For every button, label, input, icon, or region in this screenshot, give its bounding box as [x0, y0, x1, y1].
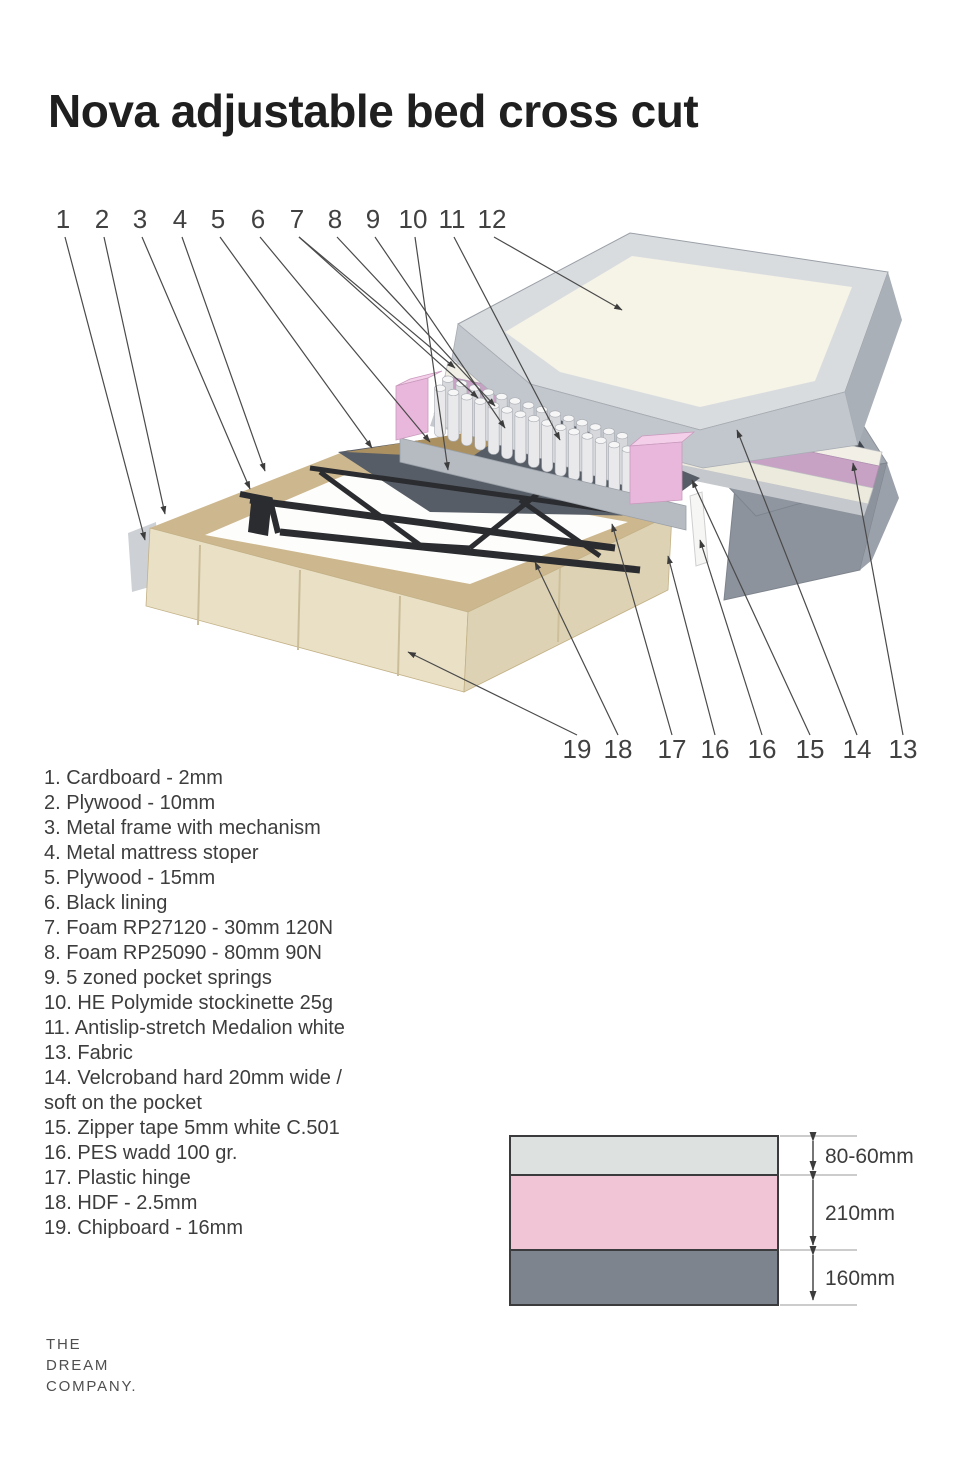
callout-leader-line — [299, 237, 455, 368]
spring-coil-cap — [523, 402, 534, 408]
spring-coil-cap — [475, 398, 486, 404]
spring-coil-cap — [595, 437, 606, 443]
legend-item: 16. PES wadd 100 gr. — [44, 1141, 456, 1166]
callout-number: 1 — [56, 204, 70, 234]
legend-item: 11. Antislip-stretch Medalion white — [44, 1016, 456, 1041]
callout-number: 15 — [796, 734, 825, 764]
parts-legend: 1. Cardboard - 2mm2. Plywood - 10mm3. Me… — [44, 766, 456, 1241]
spring-coil-cap — [496, 393, 507, 399]
callout-number: 9 — [366, 204, 380, 234]
callout-leader-line — [65, 237, 145, 540]
legend-item: 1. Cardboard - 2mm — [44, 766, 456, 791]
spring-coil-cap — [448, 389, 459, 395]
legend-item: 4. Metal mattress stoper — [44, 841, 456, 866]
callout-number: 19 — [563, 734, 592, 764]
legend-item: 2. Plywood - 10mm — [44, 791, 456, 816]
spring-coil — [502, 407, 513, 459]
spring-coil-cap — [569, 429, 580, 435]
spring-coil-cap — [510, 398, 521, 404]
spring-coil-cap — [563, 415, 574, 421]
legend-item: 9. 5 zoned pocket springs — [44, 966, 456, 991]
bed-cross-cut-illustration: 1234567891011121918171616151413 — [0, 190, 970, 770]
spring-coil-cap — [603, 428, 614, 434]
callout-number: 17 — [658, 734, 687, 764]
legend-item: 6. Black lining — [44, 891, 456, 916]
spring-coil — [475, 398, 486, 450]
callout-leader-line — [668, 556, 715, 735]
callout-leader-line — [415, 237, 448, 470]
callout-leader-line — [299, 237, 478, 398]
legend-item: 17. Plastic hinge — [44, 1166, 456, 1191]
callout-leader-line — [220, 237, 372, 448]
spring-coil-cap — [502, 407, 513, 413]
spring-coil-cap — [528, 415, 539, 421]
page: Nova adjustable bed cross cut — [0, 0, 970, 1462]
callout-number: 16 — [748, 734, 777, 764]
dimension-label-bottom: 160mm — [825, 1267, 895, 1290]
spring-coil — [542, 420, 553, 472]
callout-number: 12 — [478, 204, 507, 234]
legend-item: 8. Foam RP25090 - 80mm 90N — [44, 941, 456, 966]
spring-coil — [448, 389, 459, 441]
callout-leader-line — [182, 237, 265, 471]
callout-number: 3 — [133, 204, 147, 234]
layer-middle — [510, 1175, 778, 1250]
dimension-label-middle: 210mm — [825, 1202, 895, 1225]
legend-item: 13. Fabric — [44, 1041, 456, 1066]
spring-coil — [595, 437, 606, 489]
spring-coil-cap — [582, 433, 593, 439]
spring-coil — [569, 429, 580, 481]
callout-number: 4 — [173, 204, 187, 234]
spring-coil-cap — [443, 376, 454, 382]
legend-item: 5. Plywood - 15mm — [44, 866, 456, 891]
layer-thickness-diagram: 80-60mm 210mm 160mm — [495, 1125, 965, 1320]
callout-number: 13 — [889, 734, 918, 764]
spring-coil — [528, 415, 539, 467]
spring-coil — [515, 411, 526, 463]
legend-item: 7. Foam RP27120 - 30mm 120N — [44, 916, 456, 941]
callout-number: 11 — [439, 204, 466, 234]
callout-number: 5 — [211, 204, 225, 234]
callout-number: 6 — [251, 204, 265, 234]
dimension-label-top: 80-60mm — [825, 1145, 914, 1168]
spring-coil-cap — [461, 394, 472, 400]
spring-coil-cap — [550, 411, 561, 417]
callout-number: 10 — [399, 204, 428, 234]
spring-coil-cap — [617, 433, 628, 439]
callout-number: 2 — [95, 204, 109, 234]
callout-leader-line — [104, 237, 165, 514]
brand-logo: THE DREAM COMPANY. — [46, 1334, 137, 1397]
logo-line-2: DREAM — [46, 1355, 137, 1376]
legend-item: 3. Metal frame with mechanism — [44, 816, 456, 841]
legend-list: 1. Cardboard - 2mm2. Plywood - 10mm3. Me… — [44, 766, 456, 1241]
layer-top — [510, 1136, 778, 1175]
layer-bottom — [510, 1250, 778, 1305]
spring-coil-cap — [609, 442, 620, 448]
legend-item: 18. HDF - 2.5mm — [44, 1191, 456, 1216]
callout-number: 14 — [843, 734, 872, 764]
spring-coil-cap — [577, 420, 588, 426]
spring-coil-cap — [590, 424, 601, 430]
callout-number: 7 — [290, 204, 304, 234]
spring-coil — [582, 433, 593, 485]
legend-item: 15. Zipper tape 5mm white C.501 — [44, 1116, 456, 1141]
legend-item: 14. Velcroband hard 20mm wide / soft on … — [44, 1066, 456, 1116]
legend-item: 19. Chipboard - 16mm — [44, 1216, 456, 1241]
page-title: Nova adjustable bed cross cut — [48, 84, 698, 138]
spring-coil-cap — [515, 411, 526, 417]
legend-item: 10. HE Polymide stockinette 25g — [44, 991, 456, 1016]
callout-number: 18 — [604, 734, 633, 764]
logo-line-3: COMPANY. — [46, 1376, 137, 1397]
logo-line-1: THE — [46, 1334, 137, 1355]
spring-coil — [609, 442, 620, 494]
callout-number: 8 — [328, 204, 342, 234]
callout-number: 16 — [701, 734, 730, 764]
spring-coil-cap — [555, 424, 566, 430]
spring-coil — [461, 394, 472, 446]
spring-coil — [555, 424, 566, 476]
